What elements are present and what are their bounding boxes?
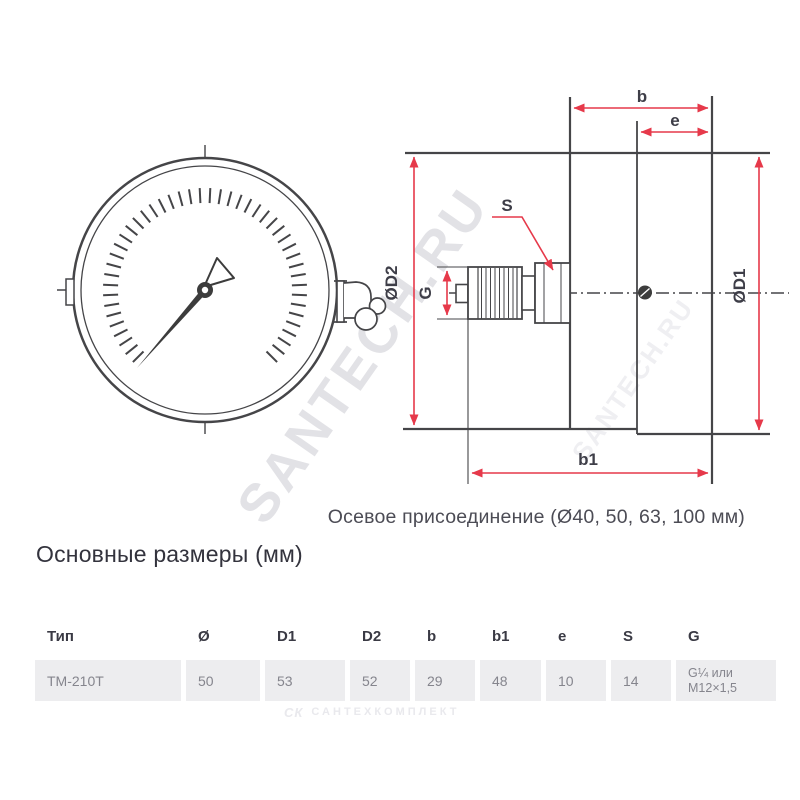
leader-line-s: [492, 217, 553, 270]
col-header-type: Тип: [35, 617, 181, 655]
footer-watermark-text: САНТЕХКОМПЛЕКТ: [311, 706, 459, 718]
col-header-b1: b1: [480, 617, 541, 655]
col-header-e: e: [546, 617, 606, 655]
cell-s: 14: [611, 660, 671, 701]
cell-b: 29: [415, 660, 475, 701]
label-s: S: [501, 196, 512, 215]
connector-neck: [522, 276, 535, 310]
label-d2: ØD2: [382, 266, 401, 301]
label-b: b: [637, 87, 647, 106]
hex-nut: [535, 263, 570, 323]
col-header-diameter: Ø: [186, 617, 260, 655]
cell-d1: 53: [265, 660, 345, 701]
section-title: Основные размеры (мм): [36, 541, 303, 568]
label-d1: ØD1: [730, 269, 749, 304]
threaded-connector: [456, 263, 570, 323]
footer-watermark-logo: СК: [284, 705, 303, 720]
needle-hub-center: [202, 287, 208, 293]
technical-drawing: SANTECH.RU SANTECH.RU: [0, 0, 800, 560]
col-header-d1: D1: [265, 617, 345, 655]
col-header-b: b: [415, 617, 475, 655]
col-header-d2: D2: [350, 617, 410, 655]
case-left-tab: [66, 279, 74, 305]
connector-tip: [456, 285, 468, 303]
footer-watermark: СК САНТЕХКОМПЛЕКТ: [284, 705, 459, 719]
col-header-g: G: [676, 617, 776, 655]
cell-b1: 48: [480, 660, 541, 701]
cell-g: G¼ или M12×1,5: [676, 660, 776, 701]
cell-diameter: 50: [186, 660, 260, 701]
dimensions-table: Тип Ø D1 D2 b b1 e S G ТМ-210Т 50 53 52 …: [30, 612, 781, 706]
label-g: G: [416, 286, 435, 299]
label-b1: b1: [578, 450, 598, 469]
table-header-row: Тип Ø D1 D2 b b1 e S G: [35, 617, 776, 655]
cell-d2: 52: [350, 660, 410, 701]
cell-e: 10: [546, 660, 606, 701]
drawing-caption: Осевое присоединение (Ø40, 50, 63, 100 м…: [328, 506, 745, 529]
diagonal-watermark-small: SANTECH.RU: [566, 293, 700, 466]
col-header-s: S: [611, 617, 671, 655]
label-e: e: [670, 111, 679, 130]
table-row: ТМ-210Т 50 53 52 29 48 10 14 G¼ или M12×…: [35, 660, 776, 701]
thread-hatching: [486, 268, 513, 318]
cell-type: ТМ-210Т: [35, 660, 181, 701]
